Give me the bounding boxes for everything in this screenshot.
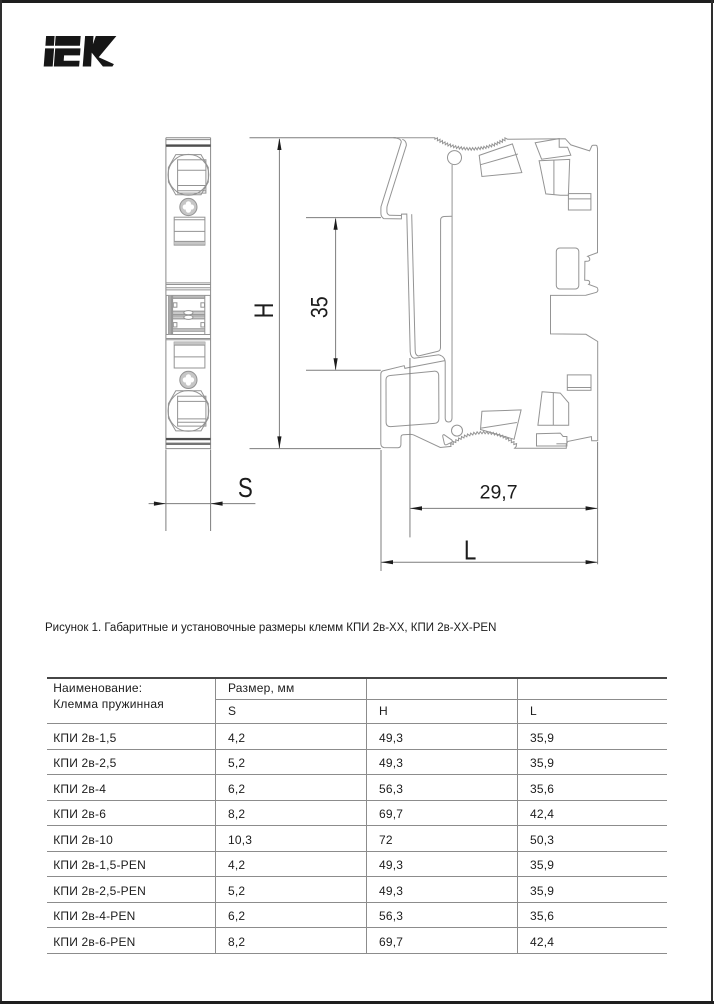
svg-text:S: S — [238, 473, 253, 504]
svg-text:29,7: 29,7 — [480, 482, 518, 504]
svg-text:35: 35 — [306, 296, 334, 318]
svg-text:H: H — [250, 303, 280, 319]
svg-text:L: L — [464, 535, 476, 566]
